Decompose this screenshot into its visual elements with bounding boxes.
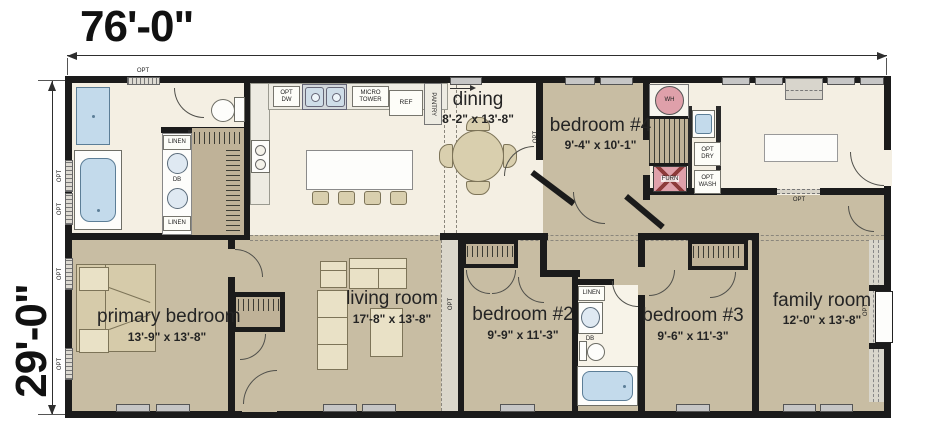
room-label-bedroom3: bedroom #3 [633,306,753,325]
interior-wall [578,279,614,285]
bathtub-basin [582,371,633,401]
room-dims-bedroom2: 9'-9" x 11'-3" [463,329,583,341]
height-dimension-label: 29'-0" [7,261,53,421]
double-bowl-label: DB [163,176,191,185]
kitchen-island [306,150,413,190]
optional-window [65,348,73,380]
optional-dishwasher: OPT DW [273,86,300,107]
room-label-bedroom4: bedroom #4 [543,116,658,135]
height-dimension-line [52,81,53,415]
garden-tub-basin [80,158,116,222]
room-dims-bedroom3: 9'-6" x 11'-3" [633,330,753,342]
linen-closet: LINEN [578,286,605,301]
interior-wall [640,233,752,240]
room-dims-dining: 8'-2" x 13'-8" [428,113,528,125]
window [783,404,816,412]
window [722,77,750,85]
interior-wall [820,188,884,195]
extension-line [38,414,65,415]
window [827,77,855,85]
marriage-line [250,235,884,236]
walk-in-closet [192,128,244,235]
window [156,404,190,412]
optional-window [65,160,73,192]
interior-wall [638,233,645,267]
interior-wall [228,233,235,249]
shower [76,87,110,145]
water-heater: WH [655,86,684,115]
cooktop [251,140,270,173]
window [565,77,595,85]
toilet-bowl [211,99,235,122]
optional-window [65,258,73,290]
toilet [234,97,245,122]
optional-washer: OPT WASH [694,170,721,194]
side-door-opening [884,150,892,186]
room-label-living-room: living room [330,289,454,308]
linen-closet: LINEN [163,135,191,150]
stool [338,191,355,205]
pillow [79,267,109,291]
utility-sink [692,110,715,138]
microwave-tower: MICRO TOWER [352,86,389,107]
optional-label: OPT [56,264,64,284]
optional-label: OPT [532,127,540,147]
room-label-dining: dining [428,90,528,109]
extension-line [38,80,65,81]
armchair [320,261,347,288]
stool [312,191,329,205]
room-label-family-room: family room [758,291,886,310]
sofa [349,258,407,289]
interior-wall [643,175,650,200]
optional-window [127,77,160,85]
furnace: FURN [653,166,687,192]
optional-door [785,78,823,100]
interior-wall [440,233,548,240]
floor-plan-canvas: 76'-0" 29'-0" OPT OPT OPT [0,0,940,432]
stool [364,191,381,205]
sink [581,307,600,328]
optional-dryer: OPT DRY [694,142,721,166]
window [676,404,710,412]
width-dimension-label: 76'-0" [80,2,193,52]
window [600,77,633,85]
width-dimension-line [67,55,887,56]
arrow-up-icon [48,81,56,91]
sink [167,188,188,209]
window [500,404,535,412]
optional-label: OPT [786,196,812,204]
optional-label: OPT [56,166,64,186]
front-door-opening [242,404,277,412]
refrigerator: REF [389,90,423,116]
optional-window [65,193,73,225]
kitchen-sink [302,84,347,110]
window [323,404,357,412]
window [116,404,150,412]
window [820,404,853,412]
room-label-primary-bedroom: primary bedroom [97,307,237,326]
window [860,77,884,85]
closet [462,240,518,268]
sink [167,153,188,174]
window [362,404,396,412]
stool [390,191,407,205]
dining-table [452,130,504,182]
optional-label: OPT [56,199,64,219]
room-label-bedroom2: bedroom #2 [463,305,583,324]
room-dims-living-room: 17'-8" x 13'-8" [330,313,454,325]
optional-opening [777,189,820,194]
room-dims-family-room: 12'-0" x 13'-8" [758,314,886,326]
dining-chair [439,144,453,168]
extension-line [886,58,887,75]
utility-table [764,134,838,162]
toilet [579,341,587,361]
interior-wall [546,270,580,277]
wall-stub [869,343,884,349]
arrow-left-icon [67,52,77,60]
toilet-bowl [587,343,605,361]
linen-closet: LINEN [163,216,191,231]
optional-label: OPT [130,67,156,75]
closet [688,240,748,270]
marriage-line [250,240,884,241]
optional-label: OPT [56,354,64,374]
room-dims-bedroom4: 9'-4" x 10'-1" [543,139,658,151]
window [755,77,783,85]
extension-line [67,58,68,75]
room-dims-primary-bedroom: 13'-9" x 13'-8" [97,331,237,343]
window [450,77,482,85]
interior-wall [536,83,543,160]
